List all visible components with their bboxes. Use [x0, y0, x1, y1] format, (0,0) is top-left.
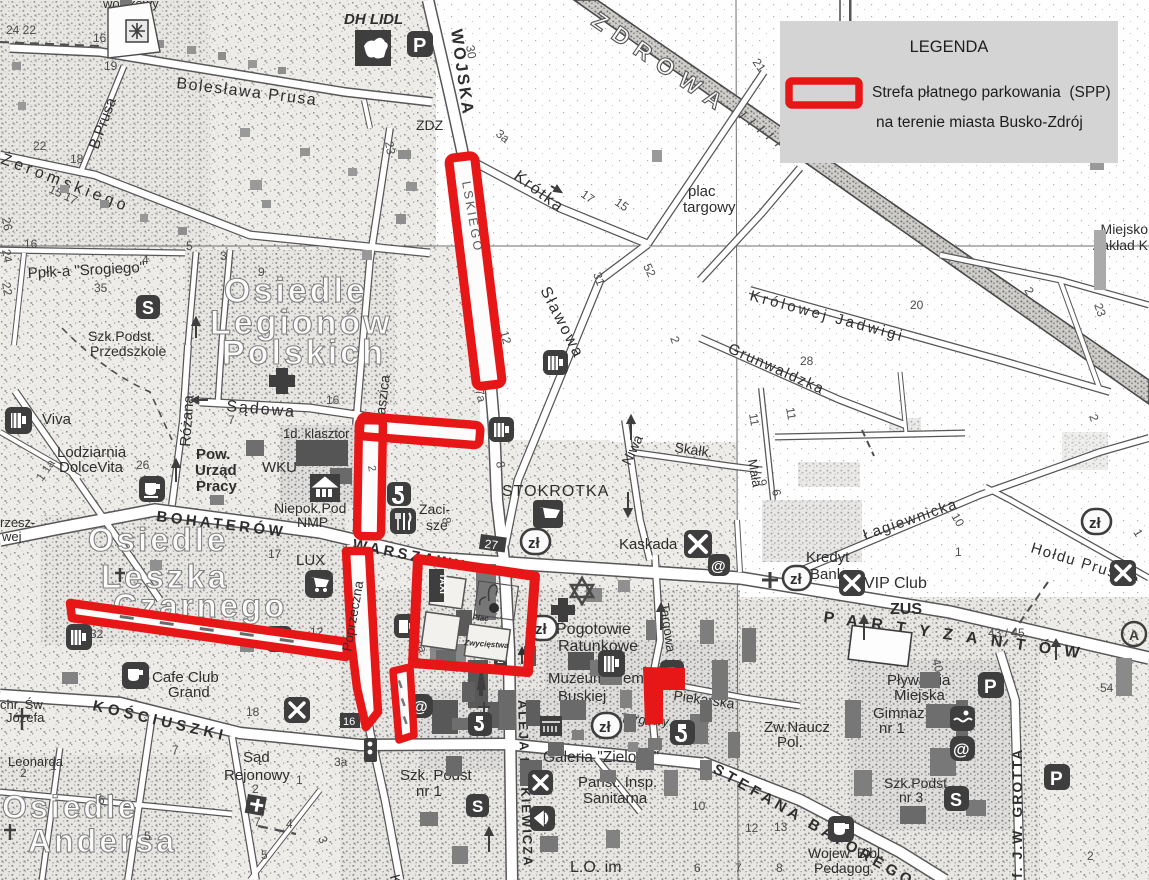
svg-text:A: A [1129, 627, 1139, 643]
svg-text:Plac: Plac [472, 613, 490, 623]
svg-text:P: P [413, 35, 426, 57]
svg-text:zł: zł [1089, 515, 1102, 532]
svg-text:DH LIDL: DH LIDL [344, 11, 403, 28]
svg-text:Przedszkole: Przedszkole [90, 343, 166, 359]
svg-text:35: 35 [94, 281, 108, 295]
svg-text:f. J.W. GROTTA: f. J.W. GROTTA [1009, 748, 1025, 878]
svg-text:1: 1 [50, 759, 57, 773]
svg-text:rzesz-: rzesz- [0, 515, 35, 530]
svg-text:5: 5 [261, 848, 268, 862]
svg-text:Józefa: Józefa [6, 710, 45, 725]
svg-text:zł: zł [528, 535, 541, 552]
svg-text:nr 1: nr 1 [879, 720, 905, 737]
svg-text:19: 19 [104, 59, 118, 73]
svg-text:16: 16 [326, 393, 340, 407]
svg-text:30: 30 [463, 44, 479, 60]
svg-text:7: 7 [172, 743, 179, 757]
svg-text:wej: wej [1, 529, 22, 544]
svg-text:S: S [142, 298, 154, 318]
svg-text:12: 12 [745, 821, 759, 835]
svg-text:26: 26 [0, 216, 15, 232]
svg-text:2: 2 [1087, 849, 1094, 863]
svg-text:P: P [984, 677, 997, 698]
svg-text:22: 22 [33, 139, 47, 153]
svg-text:Pracy: Pracy [196, 478, 238, 495]
svg-text:6: 6 [694, 861, 701, 875]
svg-text:Zaci-: Zaci- [419, 501, 450, 517]
svg-text:targowy: targowy [683, 199, 736, 216]
svg-text:Osiedle: Osiedle [2, 789, 139, 825]
svg-text:WKU: WKU [262, 459, 297, 476]
svg-text:Viva: Viva [42, 411, 72, 428]
svg-text:zł: zł [599, 719, 612, 736]
svg-text:13: 13 [774, 820, 788, 834]
svg-text:2: 2 [20, 766, 27, 780]
svg-text:3: 3 [220, 249, 227, 263]
svg-text:5: 5 [144, 829, 151, 843]
svg-text:4: 4 [142, 253, 149, 267]
svg-text:20: 20 [910, 298, 924, 312]
svg-text:plac: plac [688, 183, 716, 200]
svg-text:9: 9 [258, 265, 265, 279]
svg-text:26: 26 [136, 458, 150, 472]
svg-text:Państ. Insp.: Państ. Insp. [578, 774, 657, 791]
svg-text:Pow.: Pow. [196, 446, 230, 463]
svg-text:Urząd: Urząd [195, 462, 237, 479]
svg-text:ZUS: ZUS [890, 601, 922, 618]
svg-text:Sanitarna: Sanitarna [583, 790, 648, 807]
svg-text:2: 2 [252, 782, 259, 796]
svg-text:18: 18 [70, 152, 84, 166]
svg-text:zł: zł [535, 621, 548, 638]
svg-text:Pedagog.: Pedagog. [814, 860, 874, 876]
svg-text:43 / 45: 43 / 45 [988, 626, 1025, 640]
svg-text:VIP Club: VIP Club [864, 575, 927, 592]
svg-text:Strefa płatnego parkowania (S: Strefa płatnego parkowania (SPP) [872, 84, 1111, 101]
svg-text:8: 8 [776, 861, 783, 875]
svg-text:16: 16 [24, 237, 38, 251]
svg-text:17: 17 [268, 547, 282, 561]
svg-text:nr 1: nr 1 [416, 783, 442, 800]
svg-text:STOKROTKA: STOKROTKA [502, 483, 609, 500]
svg-text:Kaskada: Kaskada [619, 536, 678, 553]
svg-text:7: 7 [228, 413, 235, 427]
svg-text:18: 18 [246, 705, 260, 719]
svg-text:@: @ [711, 558, 726, 575]
svg-text:L.O. im: L.O. im [570, 859, 622, 876]
svg-text:LUX: LUX [296, 552, 325, 569]
svg-text:7: 7 [254, 815, 261, 829]
svg-text:Sąd: Sąd [243, 749, 270, 766]
svg-text:24: 24 [0, 248, 15, 264]
svg-text:Miejsko: Miejsko [1101, 221, 1149, 237]
svg-text:P: P [1050, 769, 1063, 790]
svg-text:S: S [950, 790, 962, 810]
svg-text:TAXI: TAXI [437, 573, 448, 594]
svg-text:5: 5 [186, 239, 193, 253]
svg-text:10: 10 [692, 799, 706, 813]
svg-text:1: 1 [955, 545, 962, 559]
svg-text:27: 27 [484, 537, 499, 553]
svg-text:28: 28 [800, 354, 814, 368]
svg-text:Polskich: Polskich [222, 334, 386, 372]
svg-text:@: @ [953, 740, 970, 759]
svg-text:1d. klasztor: 1d. klasztor [283, 426, 350, 441]
svg-text:23: 23 [382, 140, 398, 156]
svg-text:Andersa: Andersa [28, 823, 177, 859]
svg-text:Pogotowie: Pogotowie [556, 621, 631, 638]
svg-text:Kredyt: Kredyt [806, 549, 850, 566]
svg-text:16: 16 [343, 716, 355, 728]
svg-text:3a: 3a [334, 755, 348, 769]
svg-text:NMP: NMP [297, 514, 328, 530]
svg-text:7: 7 [735, 861, 742, 875]
svg-text:Wojew. Bibl.: Wojew. Bibl. [808, 845, 884, 861]
svg-text:22: 22 [0, 281, 15, 297]
svg-text:DolceVita: DolceVita [59, 459, 124, 476]
svg-text:Grand: Grand [168, 684, 210, 701]
svg-text:nr 3: nr 3 [899, 789, 923, 805]
svg-text:zł: zł [790, 571, 803, 588]
svg-text:32: 32 [90, 627, 104, 641]
svg-text:na terenie miasta Busko-Zdrój: na terenie miasta Busko-Zdrój [876, 114, 1083, 131]
svg-text:54: 54 [1100, 681, 1114, 695]
svg-text:16: 16 [93, 31, 107, 45]
svg-text:4: 4 [286, 817, 293, 831]
svg-text:1: 1 [296, 773, 303, 787]
svg-text:S: S [472, 797, 483, 816]
svg-text:Szk.Podst.: Szk.Podst. [88, 328, 155, 344]
svg-text:6: 6 [98, 793, 105, 807]
svg-text:LEGENDA: LEGENDA [910, 38, 989, 56]
svg-text:Pol.: Pol. [777, 734, 803, 751]
svg-text:ZDZ: ZDZ [416, 117, 444, 133]
svg-text:24 22: 24 22 [6, 23, 36, 37]
svg-text:Miejska: Miejska [894, 687, 946, 704]
